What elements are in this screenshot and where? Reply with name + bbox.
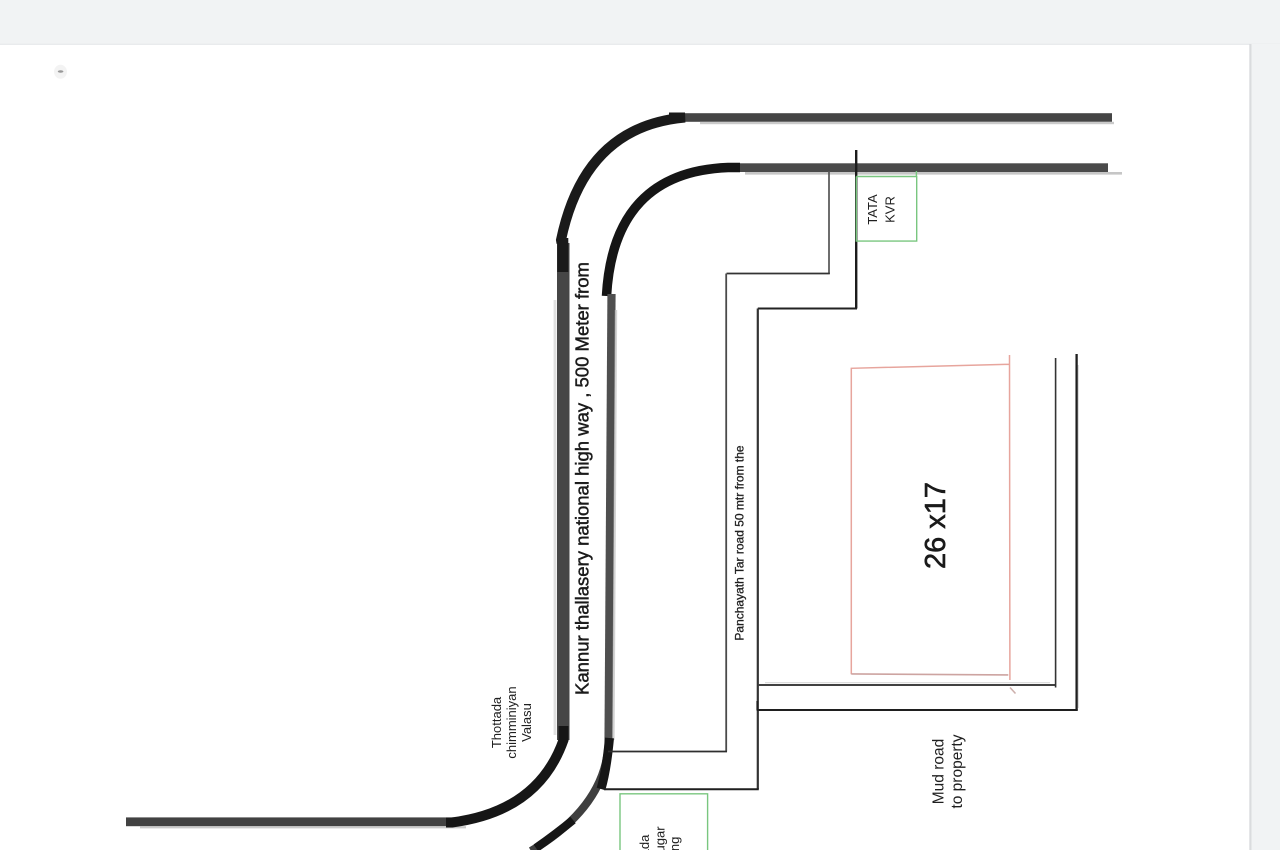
svg-text:TATAKVR: TATAKVR (865, 194, 898, 225)
svg-text:building: building (667, 837, 682, 850)
svg-text:ThottadachimminiyanValasu: ThottadachimminiyanValasu (489, 686, 534, 758)
svg-text:26 x17: 26 x17 (920, 482, 952, 569)
svg-text:Thottada: Thottada (637, 834, 652, 850)
svg-text:Panchayath Tar road 50 mtr fro: Panchayath Tar road 50 mtr from the (733, 445, 747, 641)
svg-text:Mud roadto property: Mud roadto property (931, 734, 966, 808)
svg-text:sugar: sugar (653, 826, 668, 850)
svg-text:Kannur thallasery national hig: Kannur thallasery national high way , 50… (572, 262, 593, 695)
